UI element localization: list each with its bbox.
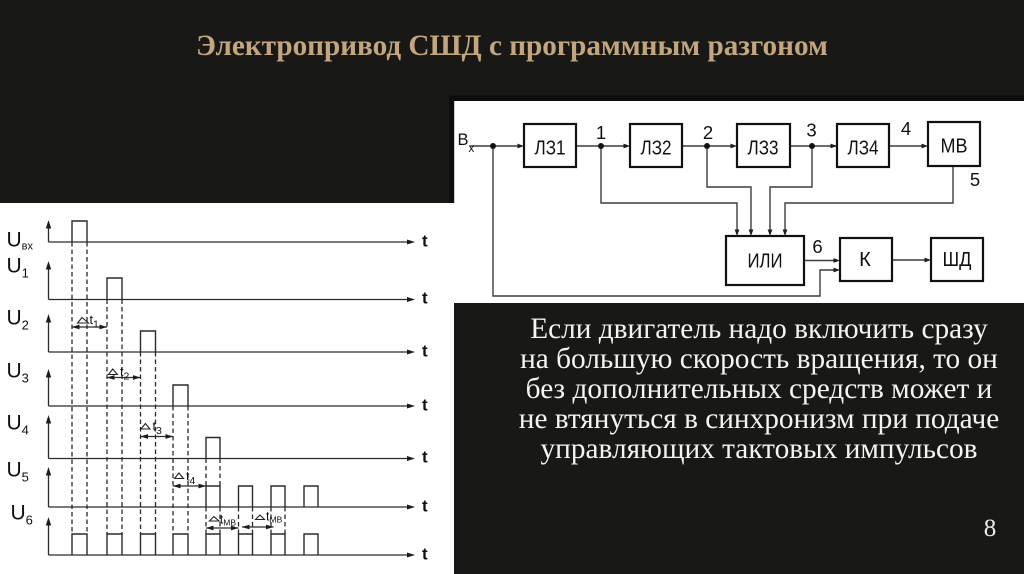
svg-text:t: t — [422, 289, 428, 308]
svg-text:1: 1 — [596, 122, 606, 143]
svg-text:ЛЗ1: ЛЗ1 — [535, 138, 566, 160]
svg-text:t: t — [422, 545, 428, 564]
svg-text:4: 4 — [901, 118, 911, 139]
svg-text:3: 3 — [806, 120, 816, 141]
svg-text:ЛЗ3: ЛЗ3 — [748, 138, 779, 160]
svg-text:МВ: МВ — [941, 136, 968, 158]
svg-text:6: 6 — [812, 236, 822, 257]
svg-text:t: t — [422, 342, 428, 361]
svg-text:t: t — [422, 497, 428, 516]
svg-text:t: t — [422, 396, 428, 415]
svg-text:ШД: ШД — [943, 249, 972, 271]
svg-text:ЛЗ2: ЛЗ2 — [641, 138, 672, 160]
svg-text:ЛЗ4: ЛЗ4 — [848, 138, 879, 160]
svg-text:К: К — [859, 249, 871, 271]
svg-text:5: 5 — [970, 169, 980, 190]
svg-text:t: t — [422, 448, 428, 467]
svg-text:ИЛИ: ИЛИ — [748, 251, 783, 273]
svg-text:t: t — [422, 232, 428, 251]
svg-text:2: 2 — [703, 122, 713, 143]
